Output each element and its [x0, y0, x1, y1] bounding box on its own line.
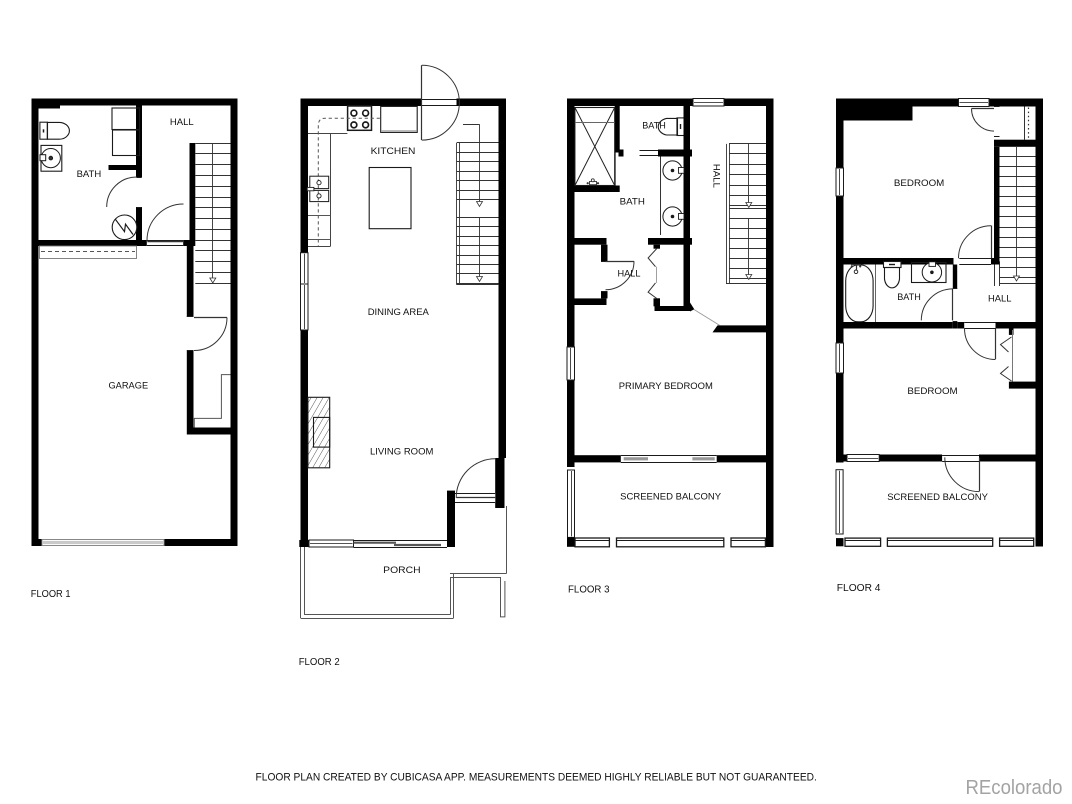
svg-text:BATH: BATH — [620, 196, 645, 207]
svg-text:HALL: HALL — [618, 269, 642, 280]
svg-text:FLOOR 2: FLOOR 2 — [299, 657, 340, 668]
svg-text:PORCH: PORCH — [383, 565, 420, 576]
svg-text:FLOOR 3: FLOOR 3 — [568, 585, 610, 596]
svg-text:HALL: HALL — [988, 294, 1012, 305]
svg-text:HALL: HALL — [170, 117, 194, 128]
svg-text:FLOOR PLAN CREATED BY CUBICASA: FLOOR PLAN CREATED BY CUBICASA APP. MEAS… — [256, 771, 817, 783]
svg-text:FLOOR 1: FLOOR 1 — [31, 589, 71, 600]
svg-text:DINING AREA: DINING AREA — [368, 307, 430, 318]
svg-text:FLOOR 4: FLOOR 4 — [837, 583, 881, 594]
svg-text:PRIMARY BEDROOM: PRIMARY BEDROOM — [619, 381, 713, 392]
svg-text:SCREENED BALCONY: SCREENED BALCONY — [887, 492, 988, 503]
svg-text:BATH: BATH — [897, 292, 921, 303]
svg-text:GARAGE: GARAGE — [108, 380, 148, 391]
svg-text:KITCHEN: KITCHEN — [371, 146, 416, 157]
svg-text:BEDROOM: BEDROOM — [907, 386, 957, 397]
svg-text:HALL: HALL — [710, 164, 721, 189]
svg-text:BATH: BATH — [77, 169, 102, 180]
svg-text:SCREENED BALCONY: SCREENED BALCONY — [620, 492, 721, 503]
svg-text:LIVING ROOM: LIVING ROOM — [370, 446, 433, 457]
svg-text:BATH: BATH — [642, 121, 666, 132]
svg-text:REcolorado: REcolorado — [966, 777, 1063, 799]
svg-text:BEDROOM: BEDROOM — [894, 178, 944, 189]
